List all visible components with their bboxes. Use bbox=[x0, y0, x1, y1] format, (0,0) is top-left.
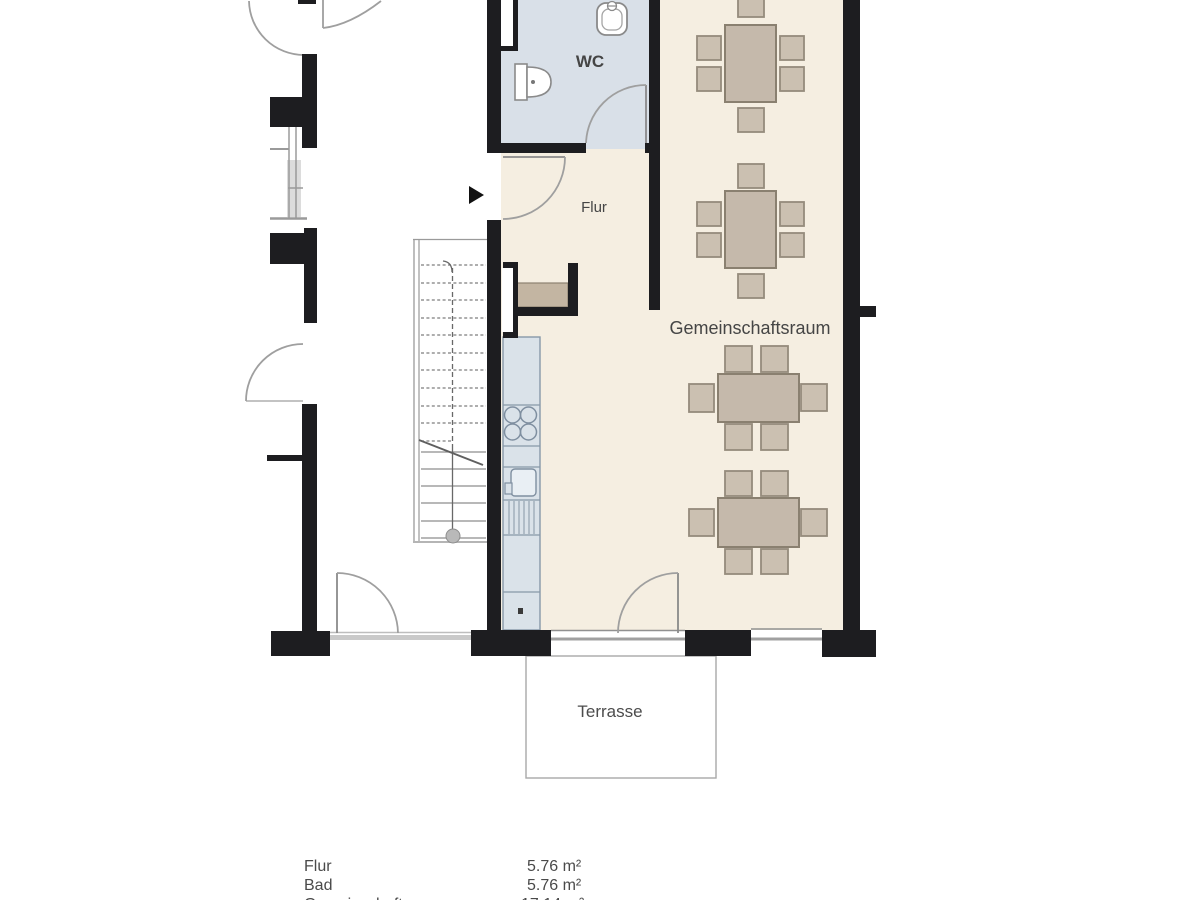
svg-text:Terrasse: Terrasse bbox=[577, 702, 642, 721]
svg-text:17.14 m²: 17.14 m² bbox=[521, 896, 585, 900]
svg-text:Flur: Flur bbox=[581, 199, 607, 216]
svg-text:5.76 m²: 5.76 m² bbox=[527, 858, 582, 875]
svg-text:WC: WC bbox=[576, 52, 604, 71]
svg-text:Gemeinschaftsraum: Gemeinschaftsraum bbox=[304, 896, 447, 900]
svg-text:Gemeinschaftsraum: Gemeinschaftsraum bbox=[669, 318, 830, 338]
svg-text:Flur: Flur bbox=[304, 858, 332, 875]
svg-text:Bad: Bad bbox=[304, 877, 332, 894]
svg-text:5.76 m²: 5.76 m² bbox=[527, 877, 582, 894]
